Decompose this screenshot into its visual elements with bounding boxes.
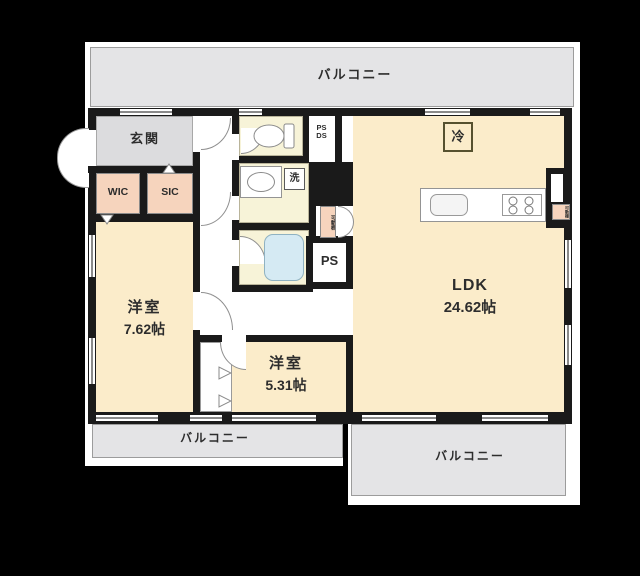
floor-plan: バルコニー xyxy=(0,0,640,576)
window-marker xyxy=(565,240,571,288)
window-marker xyxy=(89,338,95,384)
wall-segment xyxy=(309,162,353,206)
kitchen-shelf: 可動棚 xyxy=(552,204,570,220)
movable-shelf: 可動棚 xyxy=(320,206,336,238)
kitchen-sink-icon xyxy=(430,194,468,216)
bedroom1-size-label: 7.62帖 xyxy=(100,322,189,337)
window-marker xyxy=(120,109,172,115)
window-marker xyxy=(530,109,560,115)
window-marker xyxy=(482,415,548,421)
laundry-label: 洗 xyxy=(290,173,300,184)
bedroom2-size-label: 5.31帖 xyxy=(242,378,330,393)
wall-segment xyxy=(346,335,353,412)
room-ldk xyxy=(353,116,564,412)
door-gap xyxy=(232,196,239,220)
balcony-top-label: バルコニー xyxy=(290,68,420,82)
bedroom2-name-label: 洋室 xyxy=(242,356,330,372)
wall-segment xyxy=(193,152,200,222)
window-marker xyxy=(89,235,95,277)
window-marker xyxy=(190,415,222,421)
window-marker xyxy=(96,415,158,421)
window-marker xyxy=(425,109,470,115)
sic-label: SIC xyxy=(148,187,192,198)
folding-door-icon xyxy=(162,163,176,174)
door-gap xyxy=(232,240,239,266)
wall-segment xyxy=(232,223,309,230)
door-gap xyxy=(232,134,239,160)
wall-segment xyxy=(193,330,200,412)
ps-label: PS xyxy=(313,254,346,268)
entrance-door-gap xyxy=(88,130,96,168)
washbasin-icon xyxy=(247,172,275,192)
laundry-box: 洗 xyxy=(284,168,305,190)
balcony-bottom-right-label: バルコニー xyxy=(400,450,540,463)
cabinet-marker xyxy=(551,174,563,202)
ldk-size-label: 24.62帖 xyxy=(405,300,535,316)
wall-segment xyxy=(200,335,222,342)
wall-segment xyxy=(140,166,147,214)
wic-label: WIC xyxy=(97,187,139,198)
ps-ds-label: PS DS xyxy=(308,124,335,140)
balcony-divider xyxy=(343,424,348,505)
room-bedroom-1 xyxy=(96,222,193,412)
fridge-box: 冷 xyxy=(443,122,473,152)
folding-door-icon xyxy=(218,366,232,380)
wall-segment xyxy=(193,222,200,292)
balcony-bottom-left-label: バルコニー xyxy=(150,432,280,445)
toilet-icon xyxy=(250,120,296,152)
window-marker xyxy=(362,415,436,421)
window-marker xyxy=(236,109,262,115)
window-marker xyxy=(232,415,316,421)
wall-segment xyxy=(335,108,342,162)
wall-segment xyxy=(246,335,352,342)
folding-door-icon xyxy=(100,214,114,225)
wall-segment xyxy=(306,282,353,289)
entrance-door-swing-icon xyxy=(57,128,89,188)
ldk-name-label: LDK xyxy=(405,278,535,295)
folding-door-icon xyxy=(218,394,232,408)
stove-icon xyxy=(502,194,542,216)
wall-segment xyxy=(232,156,309,163)
bedroom1-name-label: 洋室 xyxy=(100,300,189,316)
genkan-label: 玄関 xyxy=(118,132,172,146)
bathtub-icon xyxy=(264,234,304,281)
wall-segment xyxy=(232,285,313,292)
window-marker xyxy=(565,325,571,365)
